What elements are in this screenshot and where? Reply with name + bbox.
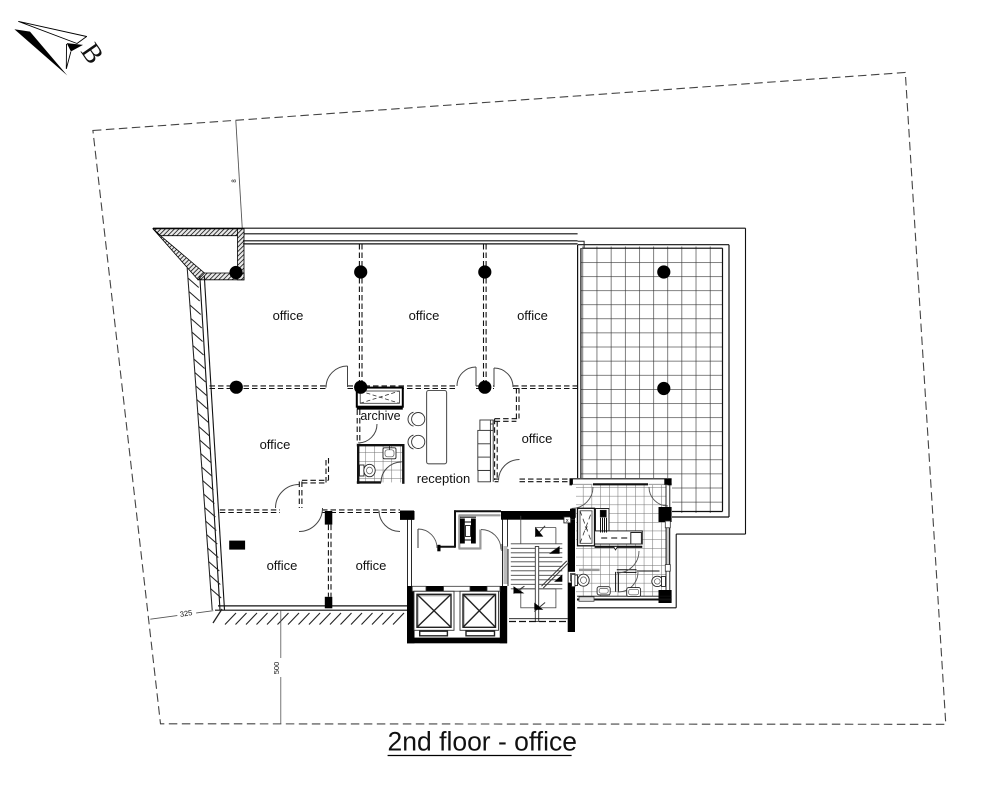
svg-text:office: office xyxy=(267,558,298,573)
svg-text:office: office xyxy=(273,308,304,323)
svg-text:reception: reception xyxy=(417,471,470,486)
svg-text:office: office xyxy=(260,437,291,452)
svg-text:office: office xyxy=(356,558,387,573)
svg-text:archive: archive xyxy=(360,409,400,423)
svg-text:office: office xyxy=(522,431,553,446)
svg-text:2nd floor - office: 2nd floor - office xyxy=(388,727,578,757)
svg-text:office: office xyxy=(409,308,440,323)
svg-text:500: 500 xyxy=(272,662,281,675)
svg-text:325: 325 xyxy=(179,608,193,619)
svg-text:office: office xyxy=(517,308,548,323)
svg-text:x: x xyxy=(566,518,569,524)
